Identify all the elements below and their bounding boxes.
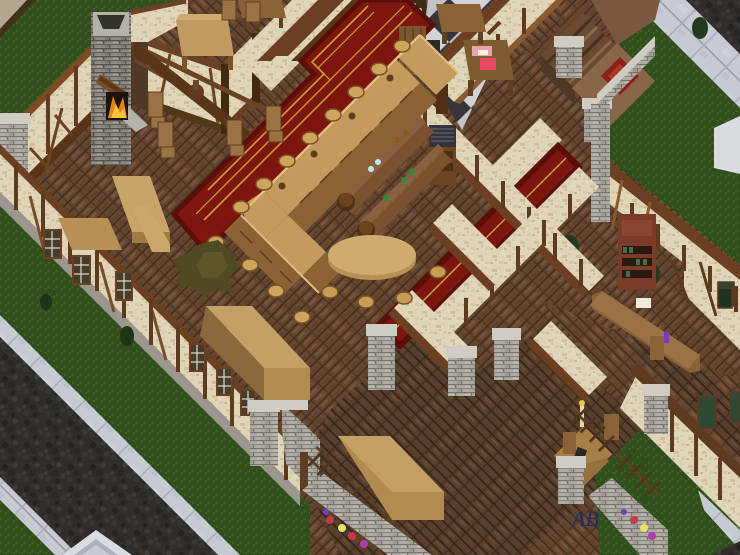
svg-text:AB: AB: [570, 506, 599, 531]
